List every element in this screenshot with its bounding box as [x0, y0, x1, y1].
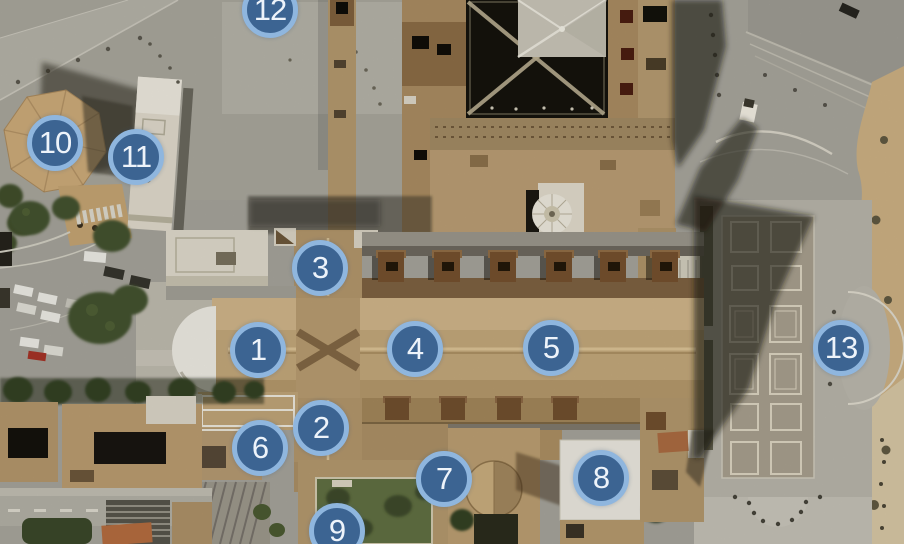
marker-number: 1 [250, 334, 266, 365]
map-marker-4[interactable]: 4 [387, 321, 443, 377]
map-marker-1[interactable]: 1 [230, 322, 286, 378]
marker-number: 2 [313, 412, 329, 443]
marker-number: 12 [254, 0, 286, 25]
map-marker-6[interactable]: 6 [232, 420, 288, 476]
map-marker-13[interactable]: 13 [813, 320, 869, 376]
marker-number: 11 [121, 141, 151, 172]
map-marker-2[interactable]: 2 [293, 400, 349, 456]
map-marker-10[interactable]: 10 [27, 115, 83, 171]
marker-number: 7 [436, 463, 452, 494]
marker-number: 10 [39, 127, 71, 158]
map-marker-9[interactable]: 9 [309, 503, 365, 544]
map-marker-7[interactable]: 7 [416, 451, 472, 507]
map-marker-8[interactable]: 8 [573, 450, 629, 506]
map-marker-12[interactable]: 12 [242, 0, 298, 38]
marker-number: 8 [593, 462, 609, 493]
marker-number: 3 [312, 252, 328, 283]
map-marker-11[interactable]: 11 [108, 129, 164, 185]
map-marker-5[interactable]: 5 [523, 320, 579, 376]
map-marker-3[interactable]: 3 [292, 240, 348, 296]
marker-number: 13 [825, 332, 857, 363]
marker-number: 6 [252, 432, 268, 463]
marker-layer: 12345678910111213 [0, 0, 904, 544]
marker-number: 9 [329, 515, 345, 544]
satellite-map-view: 12345678910111213 [0, 0, 904, 544]
marker-number: 4 [407, 333, 423, 364]
marker-number: 5 [543, 332, 559, 363]
